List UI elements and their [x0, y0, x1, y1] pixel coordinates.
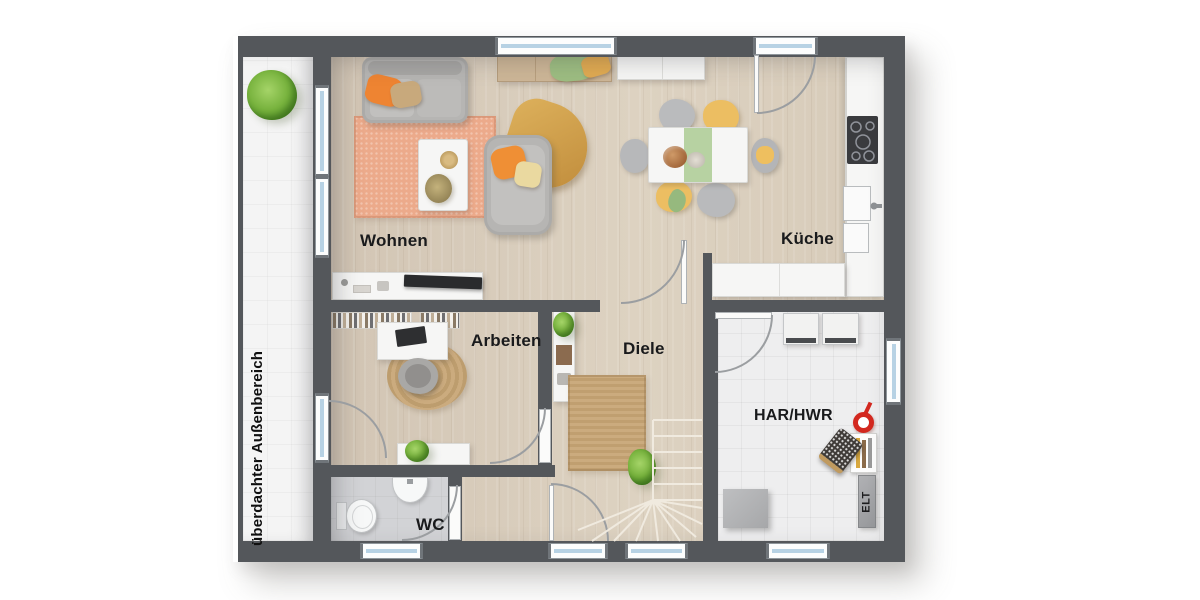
- sofa-backrest: [368, 61, 462, 75]
- table-decor-white: [687, 152, 705, 168]
- room-label-har-hwr: HAR/HWR: [754, 407, 833, 425]
- coffee-table-bowl: [440, 151, 458, 169]
- sideboard-decor: [377, 281, 389, 291]
- counter-divider: [779, 264, 780, 296]
- elt-electrical-panel: ELT: [858, 475, 876, 528]
- wall-diele-har: [703, 312, 718, 541]
- office-plant: [405, 440, 429, 462]
- wall-stub-kueche: [703, 253, 712, 300]
- room-label-diele: Diele: [623, 339, 665, 359]
- cooktop: [847, 116, 878, 164]
- window-wohnen-left-lower: [315, 176, 329, 258]
- door-leaf-arbeiten: [539, 409, 551, 463]
- window-har-bottom: [766, 543, 830, 559]
- kitchen-counter-bottom: [712, 263, 845, 297]
- washing-machine: [783, 313, 819, 345]
- entry-door-threshold: [548, 543, 608, 559]
- window-wohnen-top: [495, 37, 617, 55]
- armchair-pillow-cream: [513, 160, 543, 189]
- kitchen-counter-right: [845, 57, 884, 297]
- wall-wohnen-arbeiten: [331, 300, 600, 312]
- sideboard-decor: [353, 285, 371, 293]
- door-leaf-wc: [449, 486, 461, 540]
- sideboard-divider: [535, 53, 536, 81]
- sink-basin: [843, 186, 871, 221]
- caddy-brush: [868, 438, 872, 468]
- sink-basin: [843, 223, 869, 253]
- dryer: [822, 313, 859, 345]
- wc-sink-tap: [407, 479, 413, 484]
- hall-shelf-plant: [553, 312, 574, 337]
- table-bouquet: [663, 146, 687, 168]
- desk-chair: [398, 358, 438, 394]
- door-leaf-terrace: [754, 55, 759, 113]
- door-arbeiten-outdoor: [315, 393, 329, 463]
- desk-chair-seat: [405, 364, 431, 388]
- floor-plan-canvas: ELT: [0, 0, 1200, 600]
- room-label-arbeiten: Arbeiten: [471, 331, 542, 351]
- dining-chair-gray: [697, 183, 735, 217]
- white-cabinet: [617, 55, 705, 80]
- sideboard-decor: [341, 279, 348, 286]
- sofa-cushion: [417, 79, 461, 117]
- elt-label: ELT: [861, 491, 873, 512]
- red-bucket: [853, 412, 874, 433]
- dining-chair-gray: [620, 139, 649, 173]
- terrace-door-kueche: [753, 37, 818, 55]
- window-wohnen-left-upper: [315, 85, 329, 177]
- room-label-kueche: Küche: [781, 229, 834, 249]
- toilet-bowl: [346, 499, 377, 533]
- wall-exterior-right: [884, 36, 905, 562]
- door-leaf-entry: [549, 485, 554, 541]
- room-label-wc: WC: [416, 515, 445, 535]
- outdoor-area-label: überdachter Außenbereich: [249, 351, 267, 546]
- window-diele-bottom: [625, 543, 688, 559]
- toilet-bowl-inner: [352, 505, 373, 529]
- caddy-brush: [862, 440, 866, 468]
- dried-plant-decor: [425, 174, 452, 203]
- shelf-books: [556, 345, 572, 365]
- stair-plant: [628, 449, 656, 485]
- door-leaf-wohnen-diele: [681, 240, 687, 304]
- dining-table: [648, 127, 748, 183]
- room-label-wohnen: Wohnen: [360, 231, 428, 251]
- wall-wc-top: [331, 465, 555, 477]
- chair-cushion-yellow: [756, 146, 774, 164]
- cabinet-divider: [662, 56, 663, 79]
- window-har-right: [886, 338, 901, 405]
- window-wc: [360, 543, 423, 559]
- door-leaf-har: [715, 312, 772, 319]
- outdoor-plant: [247, 70, 297, 120]
- wall-kueche-har: [703, 300, 884, 312]
- storage-box: [723, 489, 768, 528]
- dining-chair-gray: [751, 138, 779, 173]
- wall-outdoor-left-edge: [238, 57, 243, 541]
